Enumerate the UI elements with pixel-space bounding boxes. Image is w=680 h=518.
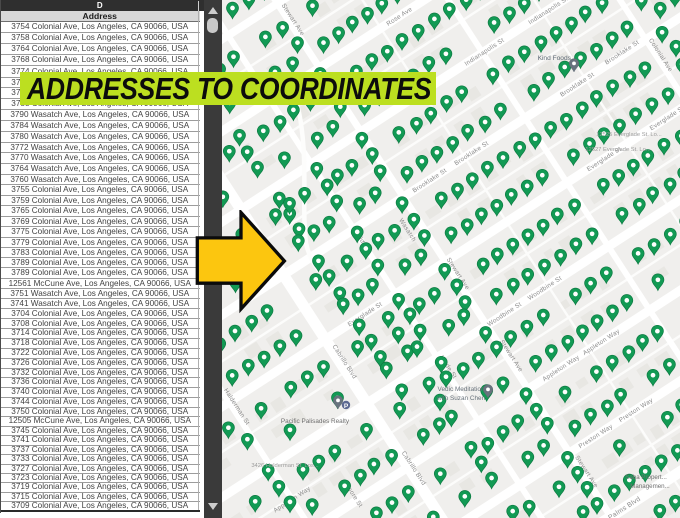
- svg-text:12525 Everglade St. Lo...: 12525 Everglade St. Lo...: [596, 132, 662, 138]
- svg-text:Managemen...: Managemen...: [630, 483, 670, 490]
- svg-text:3426 Halderman St, Los...: 3426 Halderman St, Los...: [251, 463, 319, 469]
- svg-text:Pacific Palisades Realty: Pacific Palisades Realty: [281, 418, 350, 425]
- svg-text:Vedic Meditation: Vedic Meditation: [438, 386, 485, 393]
- svg-text:Saba Propert...: Saba Propert...: [625, 474, 667, 481]
- svg-text:12527 Everglade St. Lo...: 12527 Everglade St. Lo...: [585, 147, 651, 153]
- svg-text:with Suzan Chen: with Suzan Chen: [436, 395, 486, 402]
- svg-text:P: P: [344, 403, 349, 410]
